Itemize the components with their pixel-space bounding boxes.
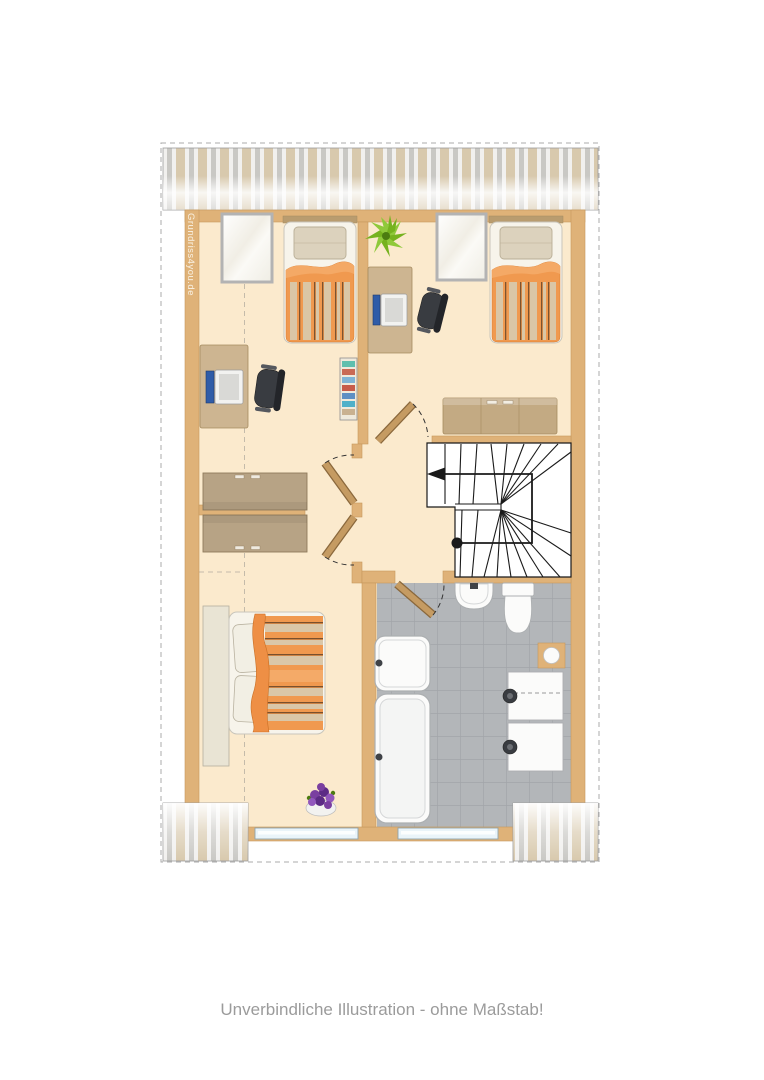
sideboard-icon — [443, 398, 557, 434]
watermark-text: Grundriss4you.de — [185, 213, 196, 296]
floorplan-svg — [0, 0, 764, 1080]
computer-icon — [373, 294, 407, 326]
single-bed-icon — [283, 216, 357, 343]
roof-overhang-corner — [163, 803, 248, 861]
desk-icon — [368, 267, 412, 353]
wardrobe-icon — [203, 515, 307, 552]
bathtub-icon — [375, 694, 430, 823]
washing-machine-icon — [503, 723, 563, 771]
caption-text: Unverbindliche Illustration - ohne Maßst… — [0, 1000, 764, 1020]
shower-icon — [375, 636, 430, 691]
roof-overhang-corner — [513, 803, 598, 861]
washbasin-icon — [455, 583, 493, 609]
toilet-icon — [502, 583, 534, 633]
wardrobe-icon — [203, 473, 307, 510]
washing-machine-icon — [503, 672, 563, 720]
bookshelf-icon — [340, 358, 357, 420]
single-bed-icon — [489, 216, 563, 343]
computer-icon — [206, 370, 243, 404]
floorplan-canvas: Grundriss4you.de Unverbindliche Illustra… — [0, 0, 764, 1080]
chimney-icon — [538, 643, 565, 668]
desk-icon — [200, 345, 248, 428]
roof-overhang-band — [163, 148, 598, 210]
